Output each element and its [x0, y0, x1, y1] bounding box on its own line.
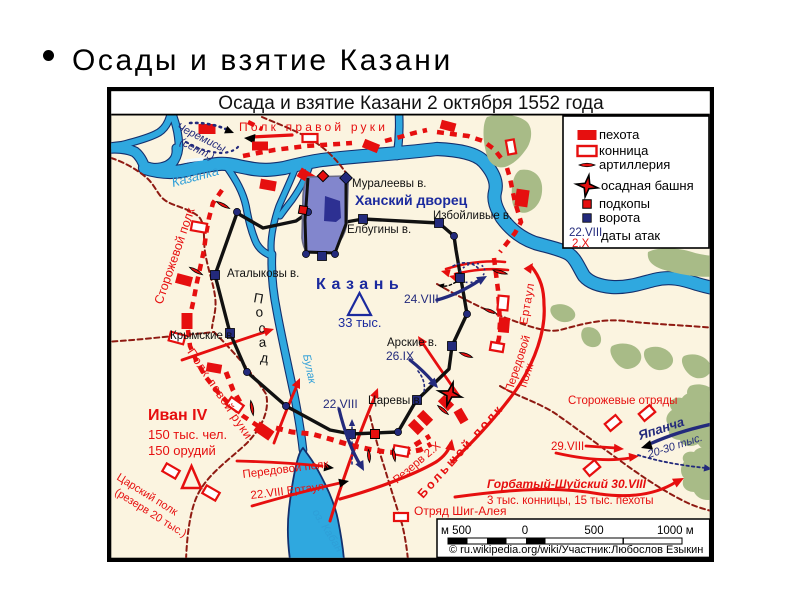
svg-text:конница: конница — [599, 143, 649, 158]
svg-text:29.VIII: 29.VIII — [551, 441, 584, 453]
svg-text:3 тыс. конницы, 15 тыс. пехоты: 3 тыс. конницы, 15 тыс. пехоты — [487, 495, 654, 507]
svg-text:24.VIII: 24.VIII — [404, 292, 439, 306]
svg-text:Сторожевые отряды: Сторожевые отряды — [568, 395, 677, 407]
svg-text:150 орудий: 150 орудий — [148, 443, 216, 458]
svg-text:даты атак: даты атак — [601, 228, 660, 243]
svg-text:0: 0 — [522, 525, 528, 537]
svg-text:Горбатый-Шуйский 30.VIII: Горбатый-Шуйский 30.VIII — [487, 477, 647, 491]
svg-text:33 тыс.: 33 тыс. — [338, 315, 381, 330]
svg-text:Ханский дворец: Ханский дворец — [355, 192, 468, 208]
svg-text:Аталыковы в.: Аталыковы в. — [227, 268, 299, 280]
svg-text:Избойливые в.: Избойливые в. — [433, 210, 512, 222]
svg-text:ворота: ворота — [599, 210, 641, 225]
svg-text:Осада и взятие Казани 2 октябр: Осада и взятие Казани 2 октября 1552 год… — [218, 93, 604, 114]
svg-text:пехота: пехота — [599, 127, 640, 142]
svg-text:2.X: 2.X — [572, 238, 590, 250]
svg-text:500: 500 — [584, 525, 603, 537]
svg-text:м 500: м 500 — [441, 525, 471, 537]
svg-text:Елбугины в.: Елбугины в. — [347, 224, 411, 236]
svg-text:Полк правой руки: Полк правой руки — [239, 120, 388, 134]
svg-text:о: о — [255, 304, 264, 320]
svg-text:26.IX: 26.IX — [386, 349, 414, 363]
svg-text:22.VIII: 22.VIII — [323, 397, 358, 411]
svg-text:Казань: Казань — [316, 276, 404, 293]
svg-text:150 тыс. чел.: 150 тыс. чел. — [148, 427, 227, 442]
svg-text:осадная башня: осадная башня — [601, 178, 694, 193]
svg-text:Муралеевы в.: Муралеевы в. — [352, 178, 427, 190]
svg-text:Крымские в.: Крымские в. — [170, 330, 235, 342]
svg-text:Иван IV: Иван IV — [148, 407, 208, 424]
svg-text:1000 м: 1000 м — [657, 525, 694, 537]
svg-text:артиллерия: артиллерия — [599, 157, 670, 172]
svg-text:© ru.wikipedia.org/wiki/Участн: © ru.wikipedia.org/wiki/Участник:Любосло… — [449, 544, 703, 556]
svg-text:Царевы в.: Царевы в. — [368, 395, 423, 407]
svg-text:подкопы: подкопы — [599, 196, 650, 211]
svg-text:Арские в.: Арские в. — [387, 337, 437, 349]
svg-text:Отряд Шиг-Алея: Отряд Шиг-Алея — [414, 504, 506, 518]
